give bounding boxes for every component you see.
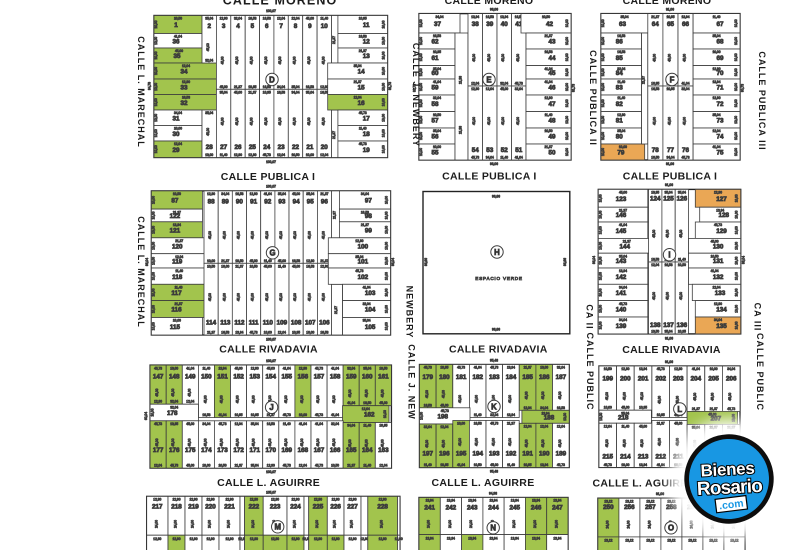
svg-text:35,04: 35,04 bbox=[292, 85, 300, 89]
svg-text:194: 194 bbox=[472, 451, 483, 458]
svg-text:91: 91 bbox=[250, 199, 258, 206]
svg-text:226: 226 bbox=[330, 504, 341, 511]
svg-text:180: 180 bbox=[439, 374, 450, 381]
svg-text:155: 155 bbox=[282, 374, 293, 381]
svg-text:16,53: 16,53 bbox=[474, 422, 482, 426]
svg-text:45,00: 45,00 bbox=[252, 438, 256, 446]
svg-text:11,40: 11,40 bbox=[622, 424, 630, 428]
svg-text:45,00: 45,00 bbox=[501, 117, 505, 125]
svg-text:163: 163 bbox=[378, 447, 389, 454]
svg-text:17: 17 bbox=[363, 115, 371, 122]
svg-text:87: 87 bbox=[171, 198, 179, 205]
svg-text:10,95: 10,95 bbox=[170, 422, 178, 426]
svg-text:108: 108 bbox=[291, 320, 302, 327]
svg-text:21,37: 21,37 bbox=[207, 331, 215, 335]
svg-text:187: 187 bbox=[556, 374, 567, 381]
svg-text:12,90: 12,90 bbox=[332, 498, 340, 502]
svg-text:45,00: 45,00 bbox=[251, 231, 255, 239]
svg-text:45,00: 45,00 bbox=[639, 424, 647, 428]
svg-text:45,73: 45,73 bbox=[619, 302, 627, 306]
svg-text:45,00: 45,00 bbox=[203, 438, 207, 446]
svg-text:13,94: 13,94 bbox=[468, 536, 476, 540]
svg-text:188: 188 bbox=[544, 414, 555, 421]
svg-text:45,73: 45,73 bbox=[424, 366, 432, 370]
svg-text:21,37: 21,37 bbox=[235, 464, 243, 468]
svg-text:157: 157 bbox=[314, 374, 325, 381]
svg-text:13,94: 13,94 bbox=[553, 536, 561, 540]
svg-text:10,00: 10,00 bbox=[384, 272, 388, 280]
svg-text:45,73: 45,73 bbox=[250, 331, 258, 335]
svg-text:10,00: 10,00 bbox=[306, 331, 314, 335]
svg-text:10,00: 10,00 bbox=[419, 19, 423, 27]
svg-text:25: 25 bbox=[249, 144, 257, 151]
svg-text:13,94: 13,94 bbox=[500, 15, 508, 19]
svg-text:45,73: 45,73 bbox=[515, 82, 523, 86]
svg-text:113: 113 bbox=[220, 320, 231, 327]
svg-text:16,53: 16,53 bbox=[424, 403, 432, 407]
svg-text:11,40: 11,40 bbox=[617, 80, 625, 84]
svg-text:45,73: 45,73 bbox=[714, 223, 722, 227]
svg-text:45,00: 45,00 bbox=[501, 54, 505, 62]
svg-text:102: 102 bbox=[358, 274, 369, 281]
svg-text:21,37: 21,37 bbox=[642, 76, 646, 84]
svg-text:45,00: 45,00 bbox=[252, 395, 256, 403]
svg-text:169: 169 bbox=[282, 447, 293, 454]
svg-text:35,04: 35,04 bbox=[713, 34, 721, 38]
svg-text:45,73: 45,73 bbox=[315, 413, 323, 417]
svg-text:98: 98 bbox=[365, 213, 373, 220]
svg-text:45,00: 45,00 bbox=[220, 85, 228, 89]
svg-text:35,04: 35,04 bbox=[433, 129, 441, 133]
svg-text:122: 122 bbox=[170, 213, 181, 220]
svg-text:CALLE J. NEWBERY: CALLE J. NEWBERY bbox=[411, 43, 421, 147]
svg-text:4: 4 bbox=[236, 23, 240, 30]
svg-text:51: 51 bbox=[515, 147, 523, 154]
svg-text:12,04: 12,04 bbox=[277, 153, 285, 157]
svg-text:CALLE PUBLICA I: CALLE PUBLICA I bbox=[442, 171, 537, 183]
svg-text:45,00: 45,00 bbox=[475, 395, 479, 403]
svg-text:13,94: 13,94 bbox=[219, 366, 227, 370]
svg-text:10,00: 10,00 bbox=[601, 19, 605, 27]
svg-text:178: 178 bbox=[167, 410, 178, 417]
svg-text:13: 13 bbox=[363, 53, 371, 60]
svg-text:10,00: 10,00 bbox=[735, 256, 739, 264]
svg-text:244: 244 bbox=[488, 505, 499, 512]
svg-text:10,00: 10,00 bbox=[170, 366, 178, 370]
svg-text:59: 59 bbox=[431, 85, 439, 92]
svg-text:9: 9 bbox=[308, 23, 312, 30]
svg-text:68: 68 bbox=[716, 39, 724, 46]
svg-text:10,50: 10,50 bbox=[678, 263, 686, 267]
svg-text:45,00: 45,00 bbox=[206, 43, 210, 51]
svg-text:54: 54 bbox=[472, 147, 480, 154]
svg-text:10,00: 10,00 bbox=[384, 226, 388, 234]
svg-text:79: 79 bbox=[617, 150, 625, 157]
svg-text:12,04: 12,04 bbox=[524, 425, 532, 429]
svg-text:10,00: 10,00 bbox=[565, 68, 569, 76]
svg-text:10,00: 10,00 bbox=[383, 410, 387, 418]
svg-text:10,00: 10,00 bbox=[202, 464, 210, 468]
svg-text:16,53: 16,53 bbox=[545, 50, 553, 54]
svg-text:10,00: 10,00 bbox=[152, 226, 156, 234]
svg-text:10,95: 10,95 bbox=[292, 331, 300, 335]
svg-text:41,04: 41,04 bbox=[457, 463, 465, 467]
svg-text:E: E bbox=[486, 75, 491, 84]
svg-text:45,00: 45,00 bbox=[268, 438, 272, 446]
svg-text:136: 136 bbox=[677, 322, 688, 329]
svg-text:46: 46 bbox=[548, 85, 556, 92]
svg-text:10,00: 10,00 bbox=[734, 116, 738, 124]
svg-text:45,00: 45,00 bbox=[525, 391, 529, 399]
svg-text:45,73: 45,73 bbox=[441, 409, 449, 413]
svg-text:J: J bbox=[269, 403, 273, 412]
svg-text:69: 69 bbox=[716, 55, 724, 62]
svg-text:10,00: 10,00 bbox=[173, 319, 181, 323]
svg-text:12,90: 12,90 bbox=[360, 537, 368, 541]
svg-text:45,00: 45,00 bbox=[321, 117, 325, 125]
svg-text:112: 112 bbox=[234, 320, 245, 327]
svg-text:35,04: 35,04 bbox=[220, 91, 228, 95]
svg-text:24,00: 24,00 bbox=[174, 520, 178, 528]
svg-text:13,94: 13,94 bbox=[507, 413, 515, 417]
svg-text:64: 64 bbox=[652, 21, 660, 28]
svg-text:176: 176 bbox=[169, 447, 180, 454]
svg-text:45,00: 45,00 bbox=[307, 231, 311, 239]
svg-text:10,00: 10,00 bbox=[601, 83, 605, 91]
svg-text:21,37: 21,37 bbox=[710, 407, 718, 411]
svg-text:45,00: 45,00 bbox=[425, 440, 429, 448]
svg-text:12,04: 12,04 bbox=[440, 425, 448, 429]
svg-text:140: 140 bbox=[616, 306, 627, 313]
svg-text:13,94: 13,94 bbox=[426, 499, 434, 503]
svg-text:162: 162 bbox=[364, 412, 375, 419]
svg-text:196: 196 bbox=[439, 451, 450, 458]
svg-text:45,00: 45,00 bbox=[619, 191, 627, 195]
svg-text:CALLE RIVADAVIA: CALLE RIVADAVIA bbox=[622, 344, 721, 356]
svg-text:204: 204 bbox=[691, 376, 702, 383]
svg-text:24,00: 24,00 bbox=[533, 520, 537, 528]
svg-text:45,00: 45,00 bbox=[472, 54, 476, 62]
svg-text:100,07: 100,07 bbox=[266, 359, 276, 363]
svg-text:100,07: 100,07 bbox=[266, 470, 276, 474]
svg-text:10,00: 10,00 bbox=[599, 226, 603, 234]
svg-text:32,04: 32,04 bbox=[557, 366, 565, 370]
svg-text:105,07: 105,07 bbox=[266, 490, 276, 494]
svg-text:45,00: 45,00 bbox=[249, 117, 253, 125]
svg-text:10,00: 10,00 bbox=[713, 50, 721, 54]
svg-text:36: 36 bbox=[172, 38, 180, 45]
svg-text:12,90: 12,90 bbox=[320, 85, 328, 89]
svg-text:21,37: 21,37 bbox=[235, 265, 243, 269]
svg-text:172: 172 bbox=[233, 447, 244, 454]
svg-text:45,00: 45,00 bbox=[222, 293, 226, 301]
svg-text:192: 192 bbox=[506, 451, 517, 458]
svg-text:16,53: 16,53 bbox=[221, 331, 229, 335]
svg-text:10,00: 10,00 bbox=[735, 321, 739, 329]
svg-text:35,04: 35,04 bbox=[306, 192, 314, 196]
svg-text:41,04: 41,04 bbox=[619, 223, 627, 227]
svg-text:45,00: 45,00 bbox=[475, 438, 479, 446]
svg-text:72: 72 bbox=[716, 101, 724, 108]
svg-text:167: 167 bbox=[314, 447, 325, 454]
svg-text:10,00: 10,00 bbox=[154, 37, 158, 45]
svg-text:24,00: 24,00 bbox=[448, 520, 452, 528]
svg-text:45,00: 45,00 bbox=[693, 392, 697, 400]
svg-text:10,00: 10,00 bbox=[601, 116, 605, 124]
svg-text:45: 45 bbox=[548, 70, 556, 77]
svg-text:182: 182 bbox=[472, 374, 483, 381]
svg-text:34,04: 34,04 bbox=[714, 318, 722, 322]
svg-text:13,94: 13,94 bbox=[173, 223, 181, 227]
svg-text:10,00: 10,00 bbox=[381, 129, 385, 137]
svg-text:12,90: 12,90 bbox=[267, 464, 275, 468]
svg-text:177: 177 bbox=[153, 447, 164, 454]
svg-text:16,53: 16,53 bbox=[665, 263, 673, 267]
svg-text:34,04: 34,04 bbox=[667, 156, 675, 160]
svg-text:10,00: 10,00 bbox=[734, 148, 738, 156]
svg-text:10,00: 10,00 bbox=[601, 148, 605, 156]
svg-text:45,73: 45,73 bbox=[457, 366, 465, 370]
svg-text:62: 62 bbox=[431, 39, 439, 46]
svg-text:13,94: 13,94 bbox=[682, 15, 690, 19]
svg-text:10,00: 10,00 bbox=[264, 331, 272, 335]
svg-text:45,00: 45,00 bbox=[187, 388, 191, 396]
svg-text:10,50: 10,50 bbox=[379, 366, 387, 370]
svg-text:173: 173 bbox=[217, 447, 228, 454]
svg-text:200: 200 bbox=[620, 376, 631, 383]
svg-text:12: 12 bbox=[363, 38, 371, 45]
svg-text:197: 197 bbox=[423, 451, 434, 458]
svg-text:96,66: 96,66 bbox=[492, 195, 500, 199]
svg-text:24: 24 bbox=[263, 144, 271, 151]
svg-text:60,04: 60,04 bbox=[144, 412, 148, 420]
svg-text:45,00: 45,00 bbox=[284, 438, 288, 446]
svg-text:85: 85 bbox=[616, 55, 624, 62]
svg-text:41,04: 41,04 bbox=[515, 156, 523, 160]
svg-text:185: 185 bbox=[522, 374, 533, 381]
svg-text:45,00: 45,00 bbox=[208, 231, 212, 239]
svg-text:13,94: 13,94 bbox=[532, 499, 540, 503]
svg-text:12,90: 12,90 bbox=[226, 537, 234, 541]
svg-text:16,53: 16,53 bbox=[486, 15, 494, 19]
svg-text:45,00: 45,00 bbox=[278, 117, 282, 125]
svg-text:96,66: 96,66 bbox=[563, 258, 567, 266]
svg-text:90,73: 90,73 bbox=[741, 84, 745, 92]
svg-text:45,00: 45,00 bbox=[222, 231, 226, 239]
svg-text:45,00: 45,00 bbox=[236, 438, 240, 446]
svg-text:45,00: 45,00 bbox=[541, 391, 545, 399]
svg-text:35,04: 35,04 bbox=[665, 329, 673, 333]
svg-text:45,00: 45,00 bbox=[666, 229, 670, 237]
svg-text:45,00: 45,00 bbox=[221, 56, 225, 64]
svg-text:16,53: 16,53 bbox=[277, 91, 285, 95]
svg-text:127: 127 bbox=[716, 196, 727, 203]
svg-text:45,00: 45,00 bbox=[264, 56, 268, 64]
svg-text:45,00: 45,00 bbox=[679, 292, 683, 300]
svg-text:10,95: 10,95 bbox=[678, 329, 686, 333]
svg-text:45,73: 45,73 bbox=[604, 463, 612, 467]
svg-text:47: 47 bbox=[548, 101, 556, 108]
svg-text:12,90: 12,90 bbox=[226, 498, 234, 502]
svg-text:109: 109 bbox=[277, 320, 288, 327]
svg-text:198: 198 bbox=[438, 414, 449, 421]
svg-text:12,90: 12,90 bbox=[714, 191, 722, 195]
svg-text:45,00: 45,00 bbox=[293, 293, 297, 301]
svg-text:10,00: 10,00 bbox=[152, 196, 156, 204]
svg-text:71: 71 bbox=[716, 85, 724, 92]
svg-text:45,00: 45,00 bbox=[425, 390, 429, 398]
svg-text:CALLE L. MARECHAL: CALLE L. MARECHAL bbox=[136, 36, 146, 148]
svg-text:10,00: 10,00 bbox=[565, 37, 569, 45]
svg-text:45,00: 45,00 bbox=[440, 403, 448, 407]
svg-text:45,00: 45,00 bbox=[264, 117, 268, 125]
svg-text:13,12: 13,12 bbox=[730, 539, 738, 543]
svg-text:10,50: 10,50 bbox=[542, 15, 550, 19]
svg-text:73: 73 bbox=[716, 117, 724, 124]
svg-text:45,00: 45,00 bbox=[292, 192, 300, 196]
svg-text:CALLE MORENO: CALLE MORENO bbox=[223, 0, 338, 8]
svg-text:67: 67 bbox=[716, 21, 724, 28]
svg-text:18: 18 bbox=[363, 131, 371, 138]
svg-text:61: 61 bbox=[431, 55, 439, 62]
svg-text:16: 16 bbox=[358, 100, 366, 107]
svg-text:214: 214 bbox=[620, 453, 631, 460]
svg-text:13,94: 13,94 bbox=[713, 80, 721, 84]
svg-text:41,04: 41,04 bbox=[711, 269, 719, 273]
svg-text:10,50: 10,50 bbox=[651, 156, 659, 160]
svg-text:45,00: 45,00 bbox=[279, 231, 283, 239]
svg-text:34,04: 34,04 bbox=[292, 91, 300, 95]
svg-text:10,00: 10,00 bbox=[457, 422, 465, 426]
svg-text:CALLE PUBLICA I: CALLE PUBLICA I bbox=[221, 171, 316, 183]
svg-text:195: 195 bbox=[456, 451, 467, 458]
svg-text:45,00: 45,00 bbox=[251, 293, 255, 301]
svg-text:45,00: 45,00 bbox=[605, 439, 609, 447]
svg-text:35,04: 35,04 bbox=[354, 64, 362, 68]
svg-text:96,04: 96,04 bbox=[741, 256, 745, 264]
svg-text:45,73: 45,73 bbox=[355, 269, 363, 273]
svg-text:13,94: 13,94 bbox=[447, 499, 455, 503]
svg-text:12,90: 12,90 bbox=[617, 113, 625, 117]
svg-text:21,37: 21,37 bbox=[332, 131, 336, 139]
svg-text:45,00: 45,00 bbox=[306, 17, 314, 21]
svg-text:10,95: 10,95 bbox=[359, 17, 367, 21]
svg-text:156: 156 bbox=[298, 374, 309, 381]
svg-text:96,06: 96,06 bbox=[490, 162, 498, 166]
svg-text:41,04: 41,04 bbox=[283, 366, 291, 370]
svg-text:13,94: 13,94 bbox=[490, 499, 498, 503]
svg-text:24,00: 24,00 bbox=[154, 520, 158, 528]
svg-text:13,94: 13,94 bbox=[540, 463, 548, 467]
svg-text:45,00: 45,00 bbox=[652, 117, 656, 125]
svg-text:13,94: 13,94 bbox=[426, 536, 434, 540]
svg-text:84: 84 bbox=[616, 70, 624, 77]
svg-text:119: 119 bbox=[172, 259, 183, 266]
svg-text:12,90: 12,90 bbox=[379, 498, 387, 502]
svg-text:206: 206 bbox=[726, 376, 737, 383]
svg-text:13,94: 13,94 bbox=[471, 15, 479, 19]
svg-text:24,00: 24,00 bbox=[469, 520, 473, 528]
svg-text:10,00: 10,00 bbox=[599, 242, 603, 250]
svg-text:12,90: 12,90 bbox=[314, 498, 322, 502]
svg-text:103: 103 bbox=[365, 290, 376, 297]
svg-text:32,04: 32,04 bbox=[500, 82, 508, 86]
svg-text:CALLE PUBLICA II: CALLE PUBLICA II bbox=[588, 50, 598, 146]
svg-text:134: 134 bbox=[716, 306, 727, 313]
svg-text:12,90: 12,90 bbox=[207, 498, 215, 502]
svg-text:10,50: 10,50 bbox=[235, 259, 243, 263]
svg-text:D: D bbox=[269, 75, 275, 84]
svg-text:45,00: 45,00 bbox=[208, 293, 212, 301]
svg-text:10,95: 10,95 bbox=[651, 191, 659, 195]
svg-text:12,04: 12,04 bbox=[471, 82, 479, 86]
svg-text:104: 104 bbox=[365, 307, 376, 314]
svg-text:219: 219 bbox=[188, 504, 199, 511]
svg-text:45,73: 45,73 bbox=[219, 422, 227, 426]
svg-text:3: 3 bbox=[222, 23, 226, 30]
svg-text:10,00: 10,00 bbox=[154, 20, 158, 28]
svg-text:111: 111 bbox=[249, 320, 259, 327]
svg-text:CALLE RIVADAVIA: CALLE RIVADAVIA bbox=[449, 344, 548, 356]
svg-text:11,40: 11,40 bbox=[175, 269, 183, 273]
svg-text:F: F bbox=[670, 75, 675, 84]
svg-text:16,53: 16,53 bbox=[320, 331, 328, 335]
svg-text:41,04: 41,04 bbox=[315, 422, 323, 426]
svg-text:45,00: 45,00 bbox=[220, 438, 224, 446]
svg-text:165: 165 bbox=[346, 447, 357, 454]
svg-text:45,00: 45,00 bbox=[541, 439, 545, 447]
svg-text:45,00: 45,00 bbox=[441, 440, 445, 448]
svg-text:41,04: 41,04 bbox=[299, 422, 307, 426]
svg-text:142: 142 bbox=[616, 274, 627, 281]
svg-text:220: 220 bbox=[205, 504, 216, 511]
svg-text:158: 158 bbox=[330, 374, 341, 381]
svg-text:32,04: 32,04 bbox=[347, 366, 355, 370]
svg-text:45,00: 45,00 bbox=[605, 392, 609, 400]
svg-text:12,90: 12,90 bbox=[173, 537, 181, 541]
svg-text:45,00: 45,00 bbox=[235, 117, 239, 125]
svg-text:10,00: 10,00 bbox=[154, 67, 158, 75]
svg-text:O: O bbox=[668, 524, 674, 533]
svg-text:31: 31 bbox=[172, 115, 180, 122]
svg-text:10,00: 10,00 bbox=[154, 145, 158, 153]
svg-text:24,00: 24,00 bbox=[554, 520, 558, 528]
svg-text:13,94: 13,94 bbox=[235, 331, 243, 335]
svg-text:13,12: 13,12 bbox=[604, 499, 612, 503]
svg-text:10,00: 10,00 bbox=[419, 148, 423, 156]
svg-text:10,00: 10,00 bbox=[381, 20, 385, 28]
svg-text:10,50: 10,50 bbox=[173, 192, 181, 196]
svg-text:11,40: 11,40 bbox=[545, 113, 553, 117]
svg-text:65: 65 bbox=[667, 21, 675, 28]
svg-text:13,94: 13,94 bbox=[511, 536, 519, 540]
svg-text:45,00: 45,00 bbox=[458, 438, 462, 446]
svg-text:96,04: 96,04 bbox=[592, 256, 596, 264]
svg-text:186: 186 bbox=[539, 374, 550, 381]
svg-text:10,00: 10,00 bbox=[154, 83, 158, 91]
svg-text:78: 78 bbox=[652, 147, 660, 154]
svg-text:35,04: 35,04 bbox=[363, 366, 371, 370]
svg-text:24,00: 24,00 bbox=[208, 520, 212, 528]
svg-text:45,00: 45,00 bbox=[292, 265, 300, 269]
svg-text:10,95: 10,95 bbox=[667, 87, 675, 91]
svg-text:24,00: 24,00 bbox=[227, 520, 231, 528]
svg-text:10,00: 10,00 bbox=[152, 242, 156, 250]
svg-text:45,00: 45,00 bbox=[622, 439, 626, 447]
svg-text:45,00: 45,00 bbox=[674, 422, 682, 426]
svg-text:100,07: 100,07 bbox=[266, 337, 276, 341]
svg-text:11,40: 11,40 bbox=[220, 153, 228, 157]
